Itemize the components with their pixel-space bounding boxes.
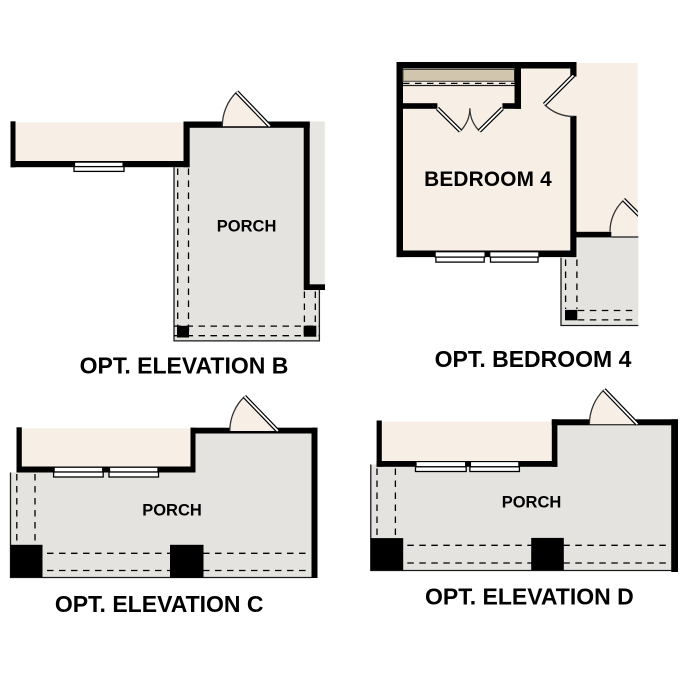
svg-text:OPT. ELEVATION B: OPT. ELEVATION B: [80, 353, 289, 379]
svg-text:OPT. ELEVATION C: OPT. ELEVATION C: [55, 591, 264, 617]
svg-text:BEDROOM 4: BEDROOM 4: [424, 168, 552, 191]
svg-text:PORCH: PORCH: [142, 502, 202, 520]
svg-text:OPT. BEDROOM 4: OPT. BEDROOM 4: [435, 346, 632, 372]
svg-text:PORCH: PORCH: [502, 494, 562, 512]
svg-text:PORCH: PORCH: [217, 217, 277, 235]
svg-text:OPT. ELEVATION D: OPT. ELEVATION D: [425, 584, 634, 610]
